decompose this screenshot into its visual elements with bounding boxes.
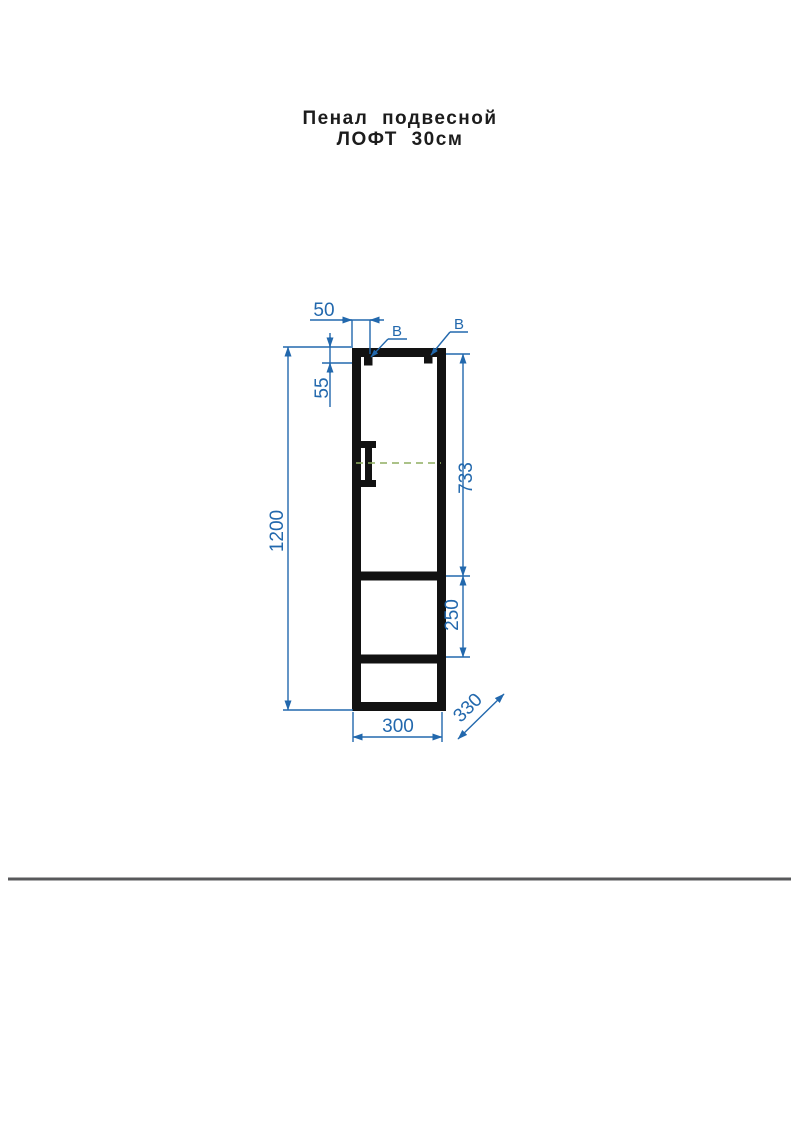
- dim-label-1200: 1200: [267, 510, 288, 552]
- dim-overall-width: 300: [353, 712, 442, 742]
- handle-bottom-cap: [361, 480, 376, 487]
- dim-depth: 330: [449, 689, 504, 739]
- mount-label-left: В: [392, 323, 402, 340]
- cabinet-drawing: 50 55 1200 733 250: [0, 0, 800, 1131]
- dim-label-330: 330: [449, 689, 486, 726]
- door-handle: [361, 441, 376, 487]
- drawing-page: Пенал подвесной ЛОФТ 30см: [0, 0, 800, 1131]
- mount-square-left: [364, 357, 373, 366]
- dim-label-50: 50: [313, 300, 334, 321]
- mount-label-right: В: [454, 316, 464, 333]
- dim-mount-side-offset: 50: [310, 300, 384, 354]
- mount-square-right: [424, 355, 433, 364]
- dim-label-733: 733: [456, 462, 477, 494]
- dim-mount-top-offset: 55: [312, 333, 352, 407]
- dim-middle-section: 250: [442, 576, 470, 657]
- dim-label-300: 300: [382, 716, 414, 737]
- mount-callout-right: В: [431, 316, 468, 355]
- dim-label-55: 55: [312, 377, 333, 398]
- cabinet-outline: [357, 353, 442, 707]
- dim-label-250: 250: [442, 599, 463, 631]
- handle-stem: [365, 446, 372, 482]
- dim-door-section: 733: [446, 354, 477, 576]
- dim-overall-height: 1200: [267, 347, 353, 710]
